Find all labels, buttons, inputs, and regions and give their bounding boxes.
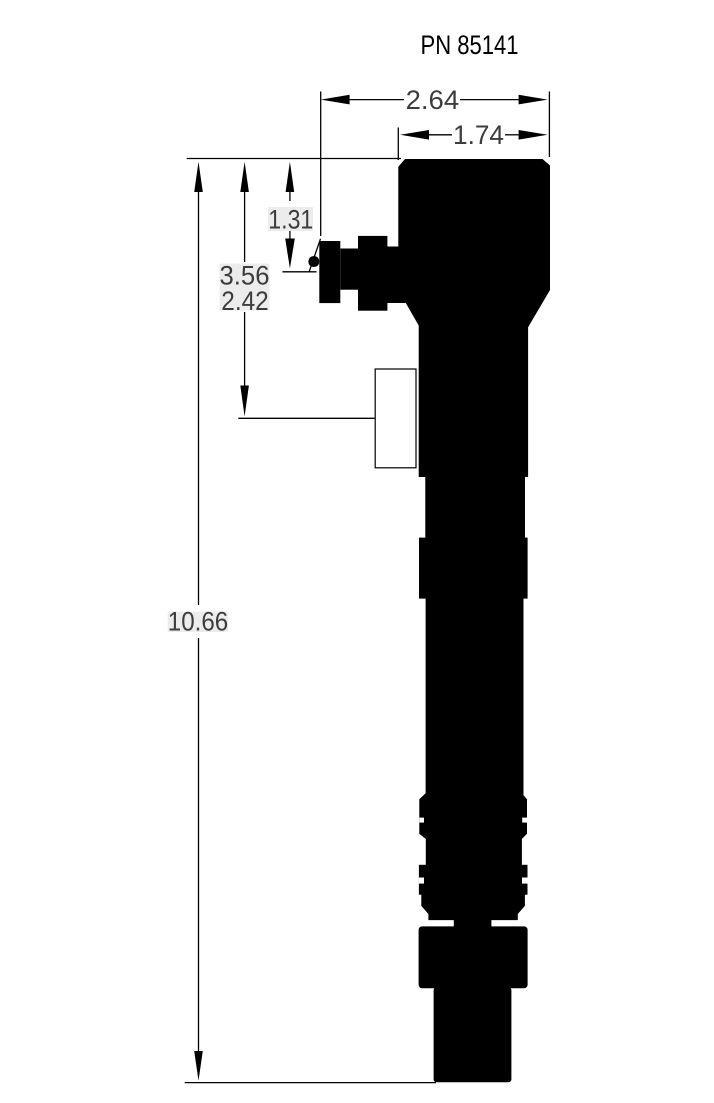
svg-text:10.66: 10.66 — [168, 607, 229, 637]
svg-text:2.64: 2.64 — [406, 85, 460, 115]
svg-text:1.31: 1.31 — [268, 205, 313, 235]
svg-text:1.74: 1.74 — [453, 120, 504, 150]
svg-text:PN 85141: PN 85141 — [421, 30, 519, 60]
svg-text:2.42: 2.42 — [221, 286, 269, 316]
